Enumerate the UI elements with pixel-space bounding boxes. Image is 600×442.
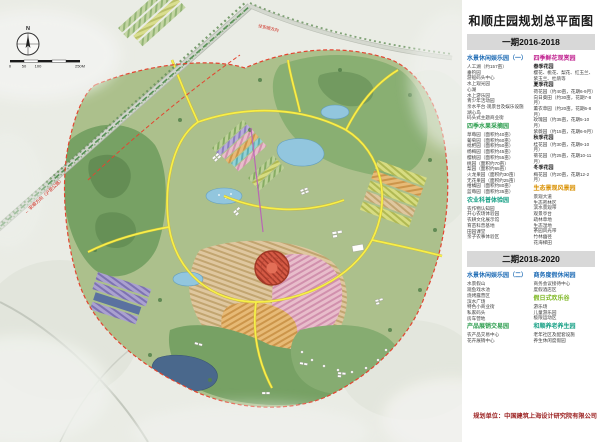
legend-section-header: 和顺养老养生园 [534, 324, 596, 331]
scale-label-50: 50 [22, 64, 27, 69]
compass-n-label: N [26, 26, 30, 32]
legend-section-header: 农业科普体验园 [467, 198, 529, 205]
legend-item: 紫薇园（约15亩，花期6-9月） [534, 129, 596, 135]
legend-section-header: 生态景观风景园 [534, 186, 596, 193]
page-title: 和顺庄园规划总平面图 [465, 12, 597, 29]
page: ← 安顺方向（沪昆公路） 往安顺方向 N 0 50 100 [0, 0, 600, 442]
scale-label-100: 100 [35, 64, 42, 69]
legend-section-header: 假日式欢乐谷 [534, 296, 596, 303]
legend-column: 四季鲜花观赏园春季花园樱花、桃花、梨花、红玉兰、紫玉兰、杜鹃等夏季花园荷花园（约… [534, 53, 596, 245]
legend-item: 樱花、桃花、梨花、红玉兰、紫玉兰、杜鹃等 [534, 70, 596, 81]
legend-item: 薰衣草园（约20亩，花期6-8月） [534, 106, 596, 117]
phase2-bar: 二期2018-2020 [467, 251, 595, 267]
legend-item: 码头式主题商业街 [467, 115, 529, 121]
legend-item: 梅花园（约20亩，花期12-2月） [534, 172, 596, 183]
legend-item: 花海梯田 [534, 240, 596, 246]
legend-section-header: 四季水果采摘园 [467, 124, 529, 131]
legend-item: 荷花园（约40亩，花期6-9月） [534, 89, 596, 95]
legend-panel: 和顺庄园规划总平面图 一期2016-2018 水景休闲娱乐园（一）人工湖（约15… [462, 0, 600, 442]
legend-item: 蓝莓园（面积约35亩） [467, 189, 529, 195]
legend-item: 养生休闲度假园 [534, 338, 596, 344]
legend-section-header: 商务度假休闲园 [534, 273, 596, 280]
legend-section-header: 四季鲜花观赏园 [534, 56, 596, 63]
legend-section-header: 水景休闲娱乐园（二） [467, 273, 529, 280]
credit-line: 规划单位：中国建筑上海设计研究院有限公司 [473, 411, 597, 420]
legend-section-header: 产品展销交易园 [467, 324, 529, 331]
legend-item: 亲水平台·观景台及娱乐设施 [467, 104, 529, 110]
legend-item: 极限运动区 [534, 315, 596, 321]
legend-item: 菊花园（约25亩，花期10-11月） [534, 153, 596, 164]
legend-column: 商务度假休闲园商务会议接待中心度假酒店区假日式欢乐谷游乐场儿童游乐园极限运动区和… [534, 270, 596, 343]
legend-column: 水景休闲娱乐园（二）水景假山观鱼戏水池烧烤露营区滨水广场特色小商业街私家码头房车… [467, 270, 529, 343]
legend-item: 玫瑰园（约35亩，花期5-10月） [534, 117, 596, 128]
legend-item: 度假酒店区 [534, 287, 596, 293]
scale-label-250: 250M [75, 64, 85, 69]
site-plan-map: ← 安顺方向（沪昆公路） 往安顺方向 N 0 50 100 [0, 0, 462, 442]
legend-item: 房车营地 [467, 316, 529, 322]
map-area: ← 安顺方向（沪昆公路） 往安顺方向 N 0 50 100 [0, 0, 462, 442]
legend-item: 向日葵田（约30亩，花期7-8月） [534, 95, 596, 106]
legend-section-header: 水景休闲娱乐园（一） [467, 56, 529, 63]
phase1-bar: 一期2016-2018 [467, 34, 595, 50]
legend-column: 水景休闲娱乐园（一）人工湖（约157亩）垂钓园游船码头中心水上观光园心湖水上游乐… [467, 53, 529, 245]
legend-item: 亲子农事体验区 [467, 234, 529, 240]
phase2-columns: 水景休闲娱乐园（二）水景假山观鱼戏水池烧烤露营区滨水广场特色小商业街私家码头房车… [467, 270, 595, 343]
legend-item: 桂花园（约30亩，花期9-10月） [534, 142, 596, 153]
legend-item: 花卉展销中心 [467, 338, 529, 344]
phase1-columns: 水景休闲娱乐园（一）人工湖（约157亩）垂钓园游船码头中心水上观光园心湖水上游乐… [467, 53, 595, 245]
